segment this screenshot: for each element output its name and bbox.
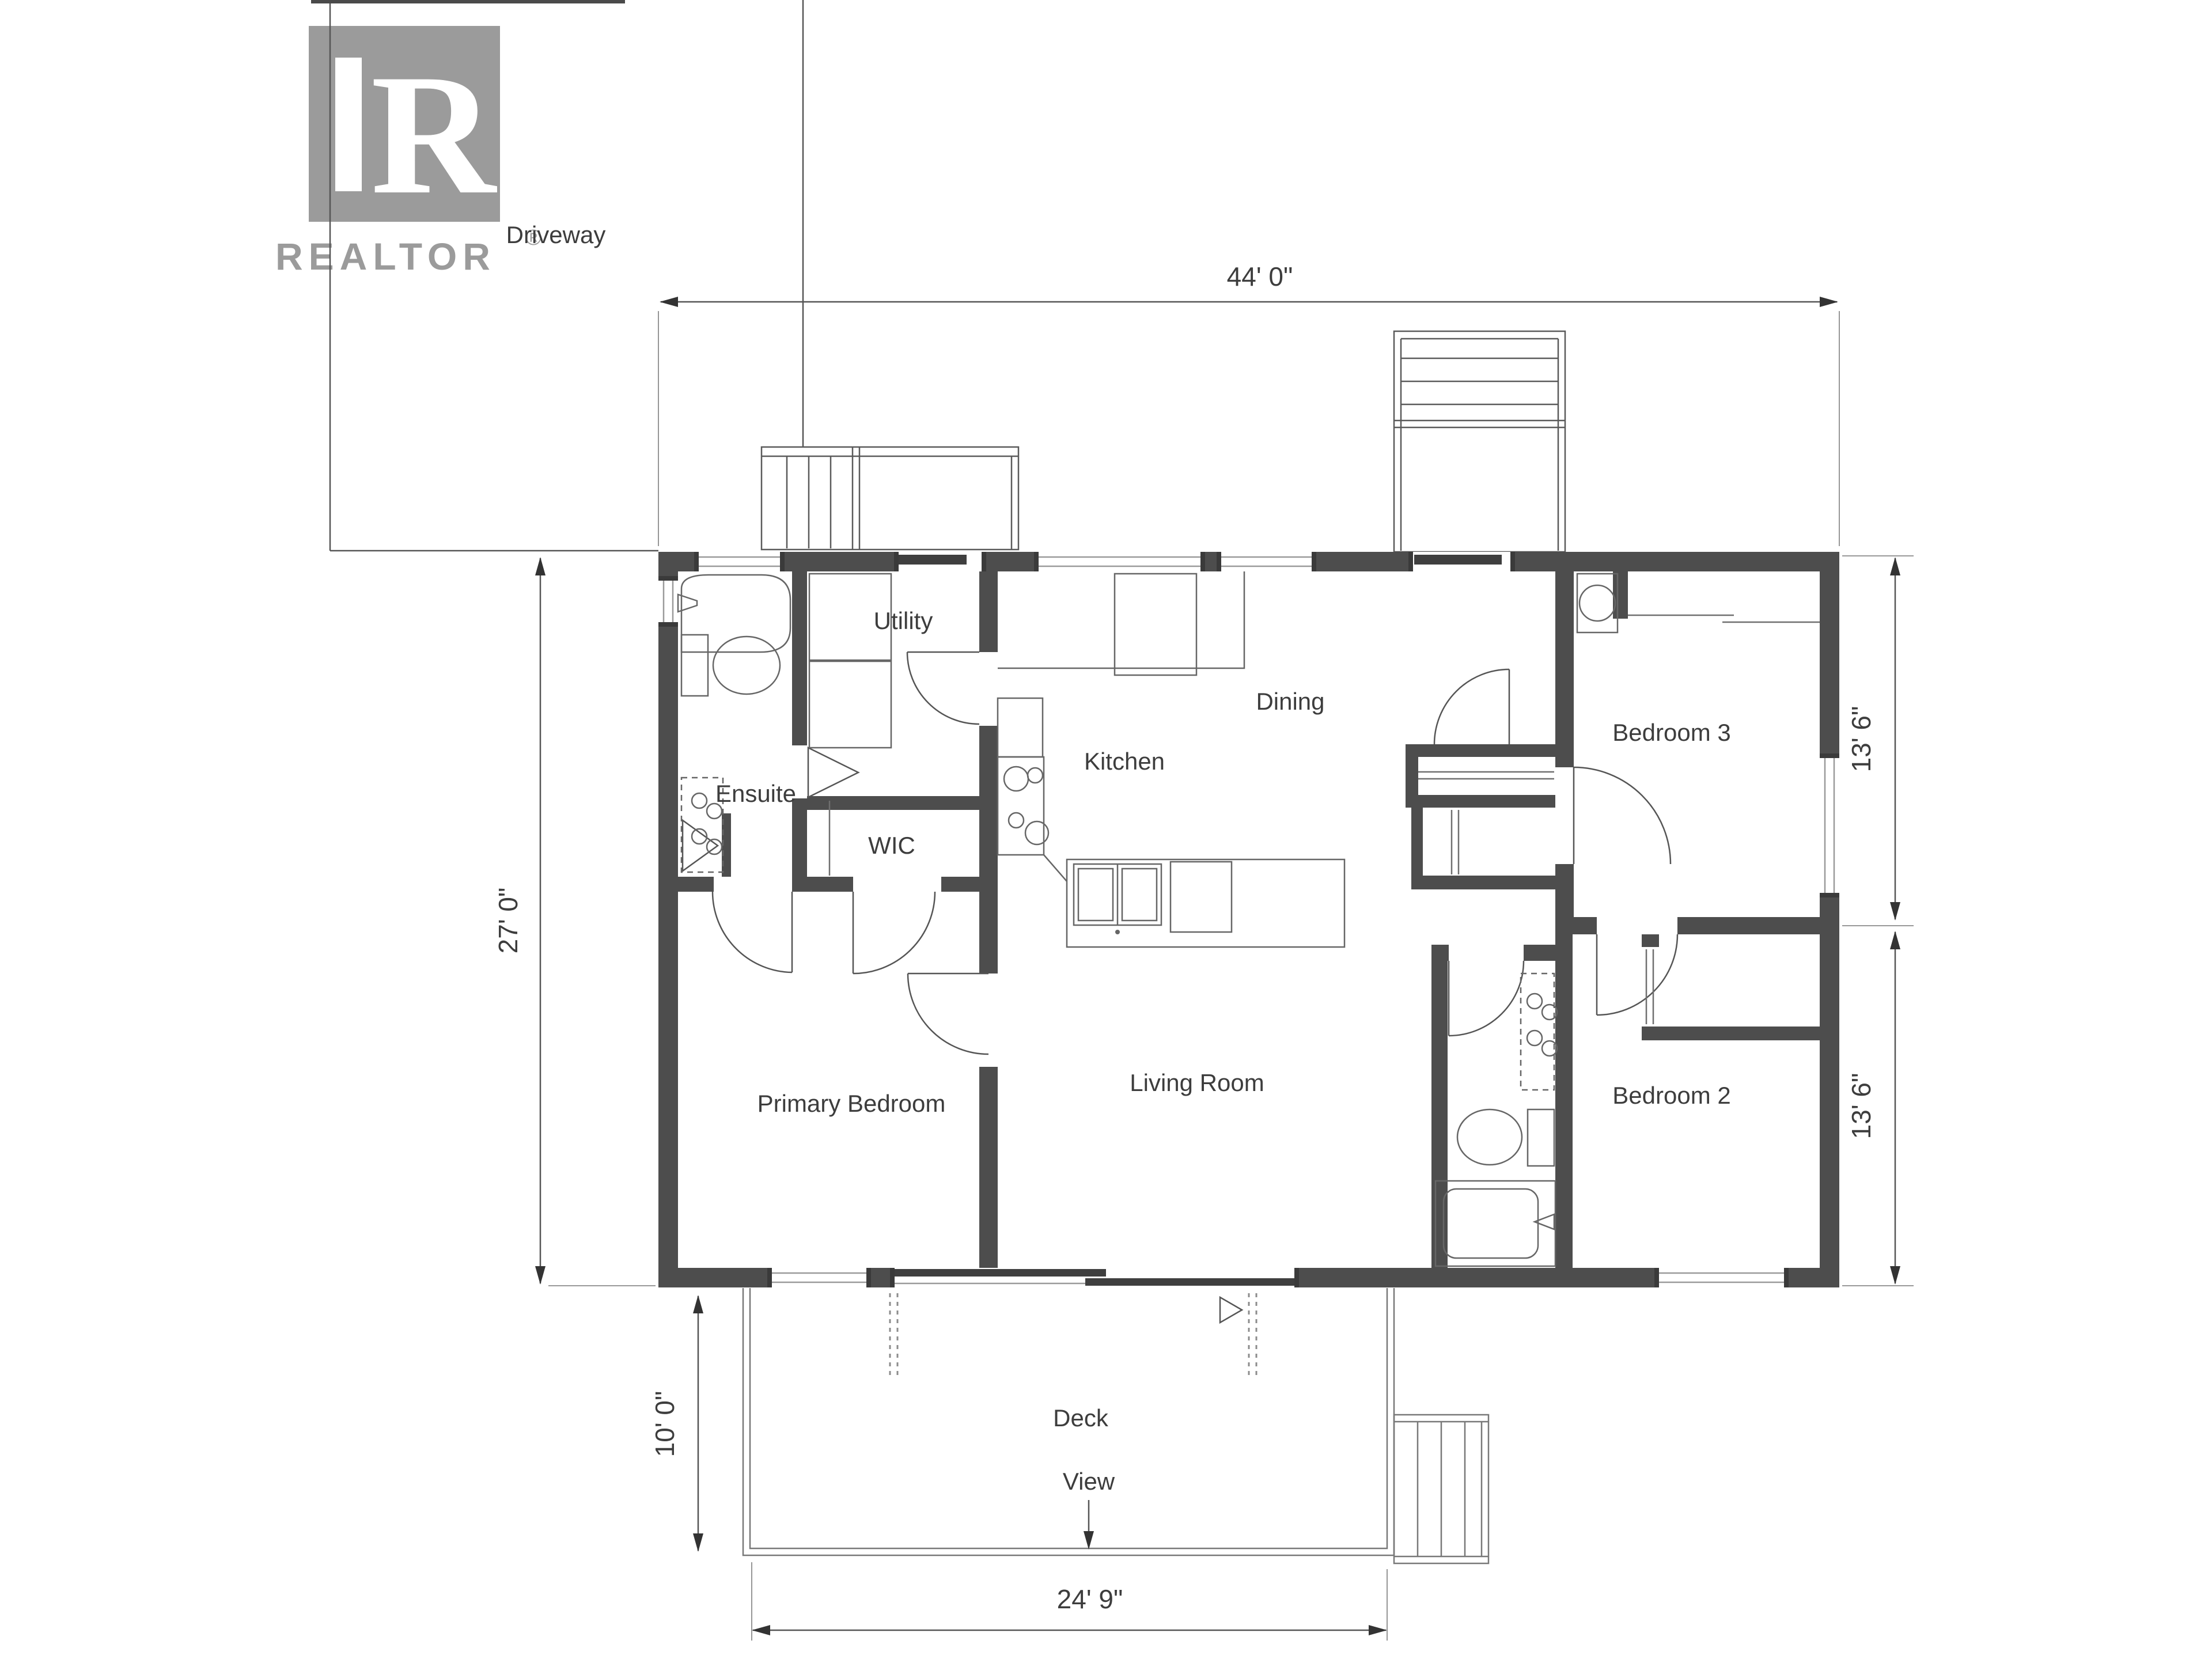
room-label-primary-bedroom: Primary Bedroom: [757, 1090, 946, 1117]
dimension-deck-width: 24' 9": [752, 1562, 1387, 1641]
ensuite-window: [694, 552, 785, 571]
floor-plan: R REALTOR ® Driveway 44' 0" 27' 0" 13' 6…: [0, 0, 2212, 1659]
wic-door-swing: [853, 892, 935, 974]
driveway-label: Driveway: [506, 221, 606, 248]
dining-window: [1217, 552, 1316, 571]
dimension-deck-depth: 10' 0": [650, 1295, 703, 1552]
room-label-dining: Dining: [1256, 688, 1324, 715]
svg-text:44' 0": 44' 0": [1227, 262, 1293, 291]
bedroom2-window: [1654, 1268, 1789, 1287]
kitchen-fridge: [1115, 574, 1196, 675]
room-labels: Utility Ensuite WIC Kitchen Dining Bedro…: [715, 607, 1731, 1495]
closet-fittings: [829, 615, 1820, 1024]
bathroom-door-swing: [1449, 961, 1524, 1036]
back-door: [1408, 552, 1515, 571]
left-wall-window: [658, 576, 678, 627]
front-porch-stairs: [762, 447, 1018, 550]
slider-track-marks: [890, 1293, 1256, 1378]
hall-utility-sink: [1577, 574, 1618, 632]
svg-text:10' 0": 10' 0": [650, 1391, 680, 1457]
room-label-bedroom3: Bedroom 3: [1612, 719, 1730, 746]
bedroom2-door-swing: [1597, 934, 1677, 1015]
kitchen-stove: [998, 698, 1048, 855]
realtor-logo: R REALTOR ®: [275, 26, 541, 278]
utility-closet-door-wedge: [808, 748, 858, 797]
kitchen-window: [1034, 552, 1205, 571]
room-label-kitchen: Kitchen: [1084, 748, 1165, 775]
room-label-bedroom2: Bedroom 2: [1612, 1082, 1730, 1109]
kitchen-counter: [998, 571, 1244, 668]
ensuite-toilet: [681, 635, 780, 696]
room-label-utility: Utility: [874, 607, 933, 634]
logo-monogram: R: [371, 39, 498, 230]
bathroom-bathtub: [1435, 1181, 1555, 1266]
house-walls: [658, 552, 1839, 1287]
dimension-bedroom2-side: 13' 6": [1842, 931, 1914, 1286]
bedroom3-window: [1820, 753, 1839, 897]
front-door: [894, 552, 986, 571]
deck-entry-marker-icon: [1220, 1297, 1242, 1323]
bathroom-vanity: [1521, 974, 1557, 1090]
svg-text:13' 6": 13' 6": [1846, 706, 1876, 772]
logo-brand-text: REALTOR: [275, 235, 496, 278]
dimension-overall-depth: 27' 0": [493, 557, 656, 1286]
dimension-overall-width: 44' 0": [658, 262, 1839, 546]
kitchen-island: [1044, 855, 1344, 947]
dimension-bedroom3-side: 13' 6": [1842, 556, 1914, 926]
room-label-ensuite: Ensuite: [715, 780, 796, 807]
view-arrow: [1084, 1500, 1094, 1550]
svg-text:13' 6": 13' 6": [1846, 1073, 1876, 1139]
svg-text:27' 0": 27' 0": [493, 888, 523, 954]
bathroom-toilet: [1457, 1109, 1554, 1166]
room-label-wic: WIC: [868, 832, 915, 859]
utility-door-swing: [907, 652, 979, 724]
room-label-living-room: Living Room: [1130, 1069, 1264, 1096]
view-label: View: [1063, 1468, 1115, 1495]
ensuite-shower: [678, 575, 790, 652]
primary-bedroom-door-swing: [908, 974, 988, 1054]
hall-door-swing: [1434, 669, 1509, 744]
ensuite-door-swing: [713, 892, 792, 972]
deck-stairs: [1394, 1415, 1488, 1563]
svg-text:24' 9": 24' 9": [1057, 1584, 1123, 1614]
back-porch-stairs: [1394, 331, 1565, 552]
primary-closet-door-wedge: [683, 820, 718, 871]
bedroom3-door-swing: [1574, 767, 1671, 864]
utility-appliances: [809, 574, 891, 748]
top-edge-line: [311, 0, 625, 3]
deck-label: Deck: [1053, 1404, 1109, 1431]
primary-bedroom-window: [767, 1268, 871, 1287]
patio-sliding-door: [890, 1268, 1299, 1287]
